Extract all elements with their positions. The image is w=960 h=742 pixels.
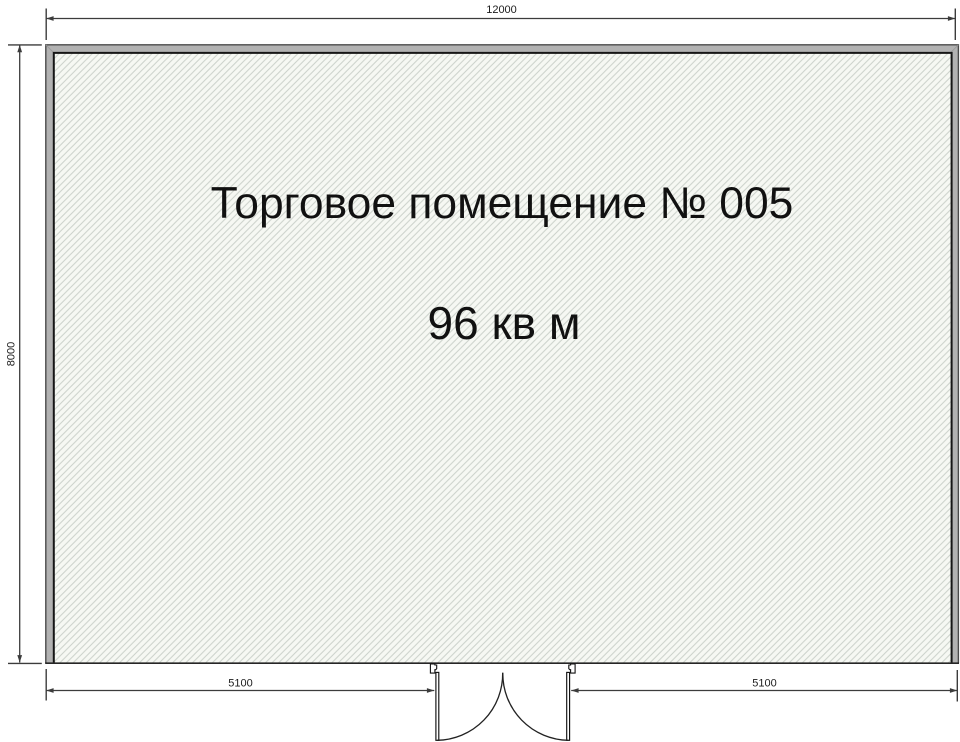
svg-text:Торговое помещение № 005: Торговое помещение № 005 (211, 179, 794, 228)
svg-text:5100: 5100 (228, 678, 252, 690)
svg-text:5100: 5100 (752, 678, 776, 690)
svg-text:8000: 8000 (6, 342, 18, 366)
svg-text:96 кв м: 96 кв м (428, 297, 581, 349)
svg-text:12000: 12000 (486, 4, 517, 16)
